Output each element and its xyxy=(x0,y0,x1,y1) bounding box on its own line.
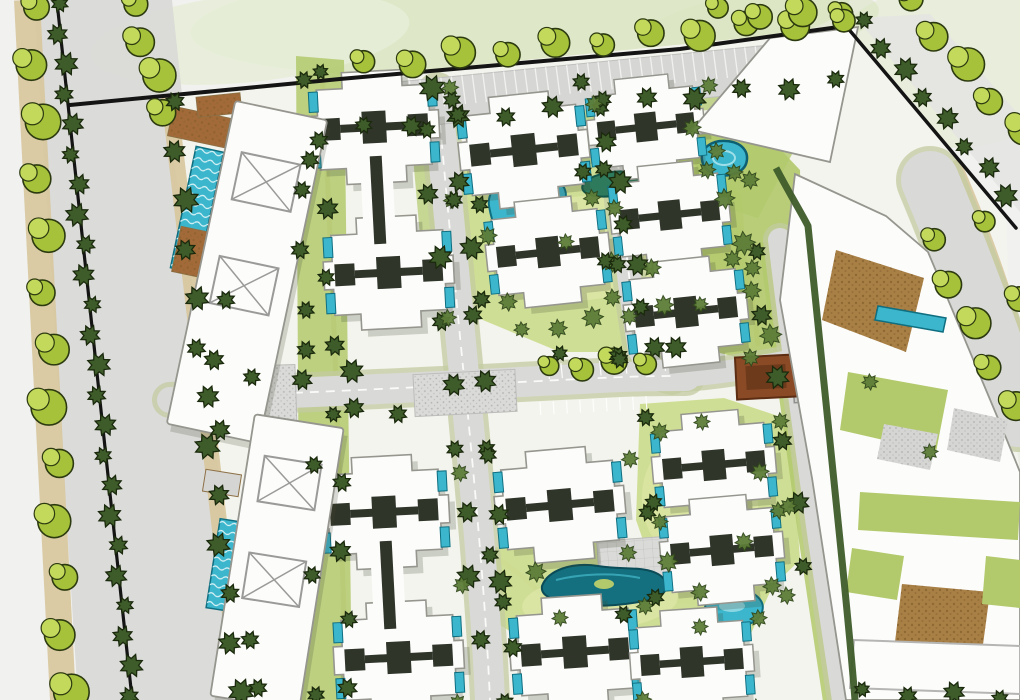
roof-core xyxy=(723,648,743,670)
balcony-pool xyxy=(440,527,450,547)
balcony-pool xyxy=(722,225,732,244)
balcony-pool xyxy=(498,528,509,549)
balcony-pool xyxy=(663,572,673,592)
balcony-pool xyxy=(745,675,755,695)
balcony-pool xyxy=(452,616,462,636)
balcony-pool xyxy=(611,462,622,483)
roof-core xyxy=(717,296,738,319)
office-slab-south xyxy=(850,640,1020,694)
balcony-pool xyxy=(437,471,447,491)
street-parking-stall-line xyxy=(606,398,607,411)
courtyard-lawn xyxy=(982,556,1020,608)
street-parking-stall-line xyxy=(646,396,647,409)
street-parking-stall-line xyxy=(593,399,594,412)
balcony-pool xyxy=(629,630,639,650)
balcony-pool xyxy=(613,237,623,256)
roof-core xyxy=(469,143,491,167)
courtyard-lawn xyxy=(846,548,904,600)
roof-core xyxy=(662,457,683,479)
roof-core xyxy=(334,263,355,286)
lagoon-island xyxy=(594,579,614,589)
master-plan-canvas xyxy=(0,0,1020,700)
street-parking-stall-line xyxy=(633,397,634,410)
roof-core xyxy=(753,535,774,557)
balcony-pool xyxy=(616,517,627,538)
balcony-pool xyxy=(697,137,707,156)
roof-core xyxy=(344,648,365,671)
balcony-pool xyxy=(740,323,750,343)
street-parking-stall-line xyxy=(620,398,621,411)
balcony-pool xyxy=(455,672,465,692)
roof-core xyxy=(593,489,615,513)
garden-pavilion xyxy=(735,354,797,399)
balcony-pool xyxy=(763,424,773,444)
balcony-pool xyxy=(430,142,440,162)
paved-plaza xyxy=(413,369,517,416)
roof-core xyxy=(640,654,660,676)
balcony-pool xyxy=(445,287,455,307)
balcony-pool xyxy=(622,282,632,302)
roof-core xyxy=(579,236,600,259)
roof-core xyxy=(608,637,629,660)
balcony-pool xyxy=(596,210,606,230)
balcony-pool xyxy=(493,472,504,493)
street-parking-stall-line xyxy=(567,401,568,414)
balcony-pool xyxy=(575,106,586,127)
roof-core xyxy=(520,643,541,666)
balcony-pool xyxy=(512,674,522,695)
roof-core xyxy=(432,644,453,667)
balcony-pool xyxy=(326,293,336,313)
street-parking-stall-line xyxy=(580,400,581,413)
balcony-pool xyxy=(627,334,637,354)
balcony-pool xyxy=(768,477,778,497)
balcony-pool xyxy=(333,622,343,642)
balcony-pool xyxy=(776,562,786,582)
roof-core xyxy=(418,498,439,521)
balcony-pool xyxy=(734,270,744,290)
roof-core xyxy=(700,200,720,222)
balcony-pool xyxy=(489,274,499,294)
roof-core xyxy=(496,245,517,268)
balcony-pool xyxy=(509,618,519,639)
street-parking-stall-line xyxy=(540,402,541,415)
roof-core xyxy=(557,133,579,157)
balcony-pool xyxy=(742,622,752,642)
street-parking-stall-line xyxy=(553,401,554,414)
balcony-pool xyxy=(590,148,600,167)
site-plan-viewport xyxy=(0,0,1020,700)
balcony-pool xyxy=(323,237,333,257)
balcony-pool xyxy=(308,92,318,112)
